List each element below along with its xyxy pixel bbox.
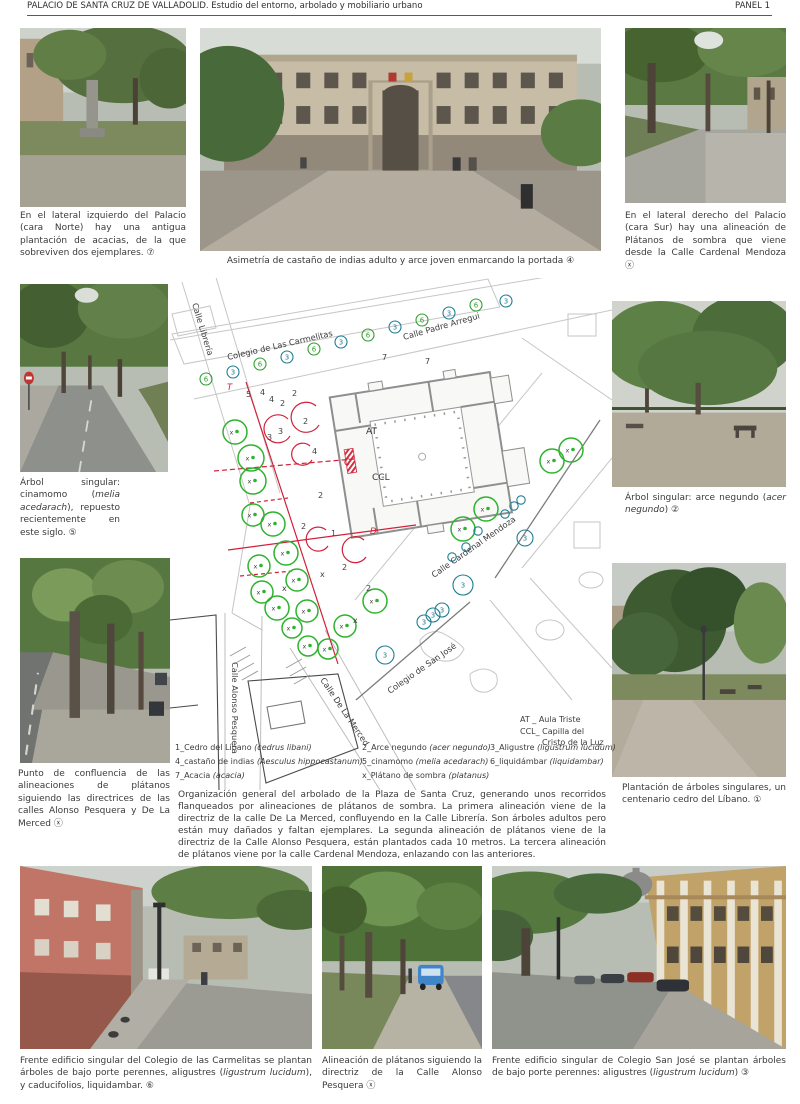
photo-san-jose-street (492, 866, 786, 1049)
platano-tree-marker (298, 636, 318, 656)
caption-pesquera: Alineación de plátanos siguiendo la dire… (322, 1055, 482, 1092)
svg-text:3: 3 (339, 339, 343, 347)
caption-carmelitas: Frente edificio singular del Colegio de … (20, 1055, 312, 1092)
photo-arce-negundo (612, 301, 786, 487)
panel-page: PALACIO DE SANTA CRUZ DE VALLADOLID. Est… (0, 0, 800, 1104)
svg-text:x: x (340, 623, 344, 631)
platano-tree-marker (274, 541, 298, 565)
header-rule (27, 15, 772, 16)
svg-text:x: x (230, 429, 234, 437)
svg-text:x: x (547, 458, 551, 466)
legend-item: x_Plátano de sombra (platanus) (362, 769, 490, 783)
street-label: Calle Padre Arregui (402, 310, 481, 341)
svg-text:x: x (458, 526, 462, 534)
platano-tree-marker (286, 569, 308, 591)
caption-portada: Asimetría de castaño de indias adulto y … (200, 256, 601, 266)
legend-item: 4_castaño de indias (Aesculus hippocasta… (175, 755, 359, 769)
photo-south-side-platanos (625, 28, 786, 203)
tree-number-label: 2 (280, 399, 285, 408)
svg-text:3: 3 (504, 298, 508, 306)
photo-palace-art (200, 28, 601, 251)
panel-number: PANEL 1 (735, 1, 770, 11)
svg-text:3: 3 (447, 310, 451, 318)
tree-number-label: 2 (301, 522, 306, 531)
map-key-line: AT _ Aula Triste (520, 714, 604, 726)
caption-platanos-sur: En el lateral derecho del Palacio (cara … (625, 210, 786, 272)
platano-tree-marker (240, 468, 266, 494)
svg-text:x: x (287, 625, 291, 633)
tree-number-label: 3 (267, 433, 272, 442)
svg-text:x: x (257, 589, 261, 597)
aligustre-small-marker (517, 496, 525, 504)
svg-text:x: x (370, 598, 374, 606)
svg-text:3: 3 (461, 582, 465, 590)
svg-text:x: x (248, 478, 252, 486)
tree-number-label: 2 (318, 491, 323, 500)
legend-item: 5_cinamomo (melia acedarach) (362, 755, 490, 769)
photo-north-side-acacias (20, 28, 186, 207)
tree-number-label: 2 (342, 563, 347, 572)
legend-item: 6_liquidámbar (liquidambar) (490, 755, 612, 769)
svg-text:x: x (272, 605, 276, 613)
tree-number-label: 5 (246, 390, 251, 399)
svg-text:3: 3 (422, 619, 426, 627)
tree-number-label: x (353, 616, 358, 625)
platano-tree-marker (318, 639, 338, 659)
caption-cedro: Plantación de árboles singulares, un cen… (622, 782, 786, 807)
platano-tree-marker (248, 555, 270, 577)
section-label: C (344, 458, 350, 468)
svg-text:x: x (566, 447, 570, 455)
photo-cedro-art (612, 563, 786, 777)
tree-number-label: x (282, 584, 287, 593)
platano-tree-marker (296, 600, 318, 622)
tree-number-label: x (320, 570, 325, 579)
svg-text:6: 6 (204, 376, 209, 384)
photo-palace-facade (200, 28, 601, 251)
platano-tree-marker (265, 596, 289, 620)
svg-text:x: x (292, 577, 296, 585)
caption-cinamomo: Árbol singular: cinamomo (melia acedarac… (20, 477, 120, 539)
svg-text:3: 3 (285, 354, 289, 362)
photo-carmelitas-art (20, 866, 312, 1049)
photo-confluencia-art (20, 558, 170, 763)
svg-text:6: 6 (420, 317, 425, 325)
svg-text:3: 3 (523, 535, 527, 543)
tree-number-label: 4 (260, 388, 265, 397)
caption-confluencia: Punto de confluencia de las alineaciones… (18, 768, 170, 830)
tree-number-label: 2 (303, 417, 308, 426)
map-legend-col2: 2_Arce negundo (acer negundo) 5_cinamomo… (362, 741, 490, 783)
photo-san-jose-art (492, 866, 786, 1049)
map-legend-col1: 1_Cedro del Líbano (cedrus libani) 4_cas… (175, 741, 359, 783)
legend-item: 2_Arce negundo (acer negundo) (362, 741, 490, 755)
section-label: D (370, 527, 377, 537)
platano-tree-marker (261, 512, 285, 536)
svg-text:x: x (302, 608, 306, 616)
svg-text:x: x (248, 512, 252, 520)
caption-acacias: En el lateral izquierdo del Palacio (car… (20, 210, 186, 260)
tree-number-label: 4 (269, 395, 274, 404)
svg-text:6: 6 (258, 361, 263, 369)
tree-number-label: 1 (331, 529, 336, 538)
svg-text:3: 3 (431, 612, 435, 620)
photo-south-side-art (625, 28, 786, 203)
tree-number-label: 4 (312, 447, 317, 456)
tree-number-label: 3 (278, 427, 283, 436)
legend-item: 1_Cedro del Líbano (cedrus libani) (175, 741, 359, 755)
svg-text:3: 3 (383, 652, 387, 660)
svg-text:6: 6 (366, 332, 371, 340)
svg-text:x: x (254, 563, 258, 571)
photo-confluencia (20, 558, 170, 763)
legend-item: 3_Aligustre (ligustrum lucidum) (490, 741, 612, 755)
photo-cinamomo-art (20, 284, 168, 472)
photo-north-side-art (20, 28, 186, 207)
street-label: Colegio de Las Carmelitas (226, 328, 333, 362)
svg-text:3: 3 (440, 607, 444, 615)
platano-tree-marker (540, 449, 564, 473)
platano-tree-marker (238, 445, 264, 471)
caption-sanjose: Frente edificio singular de Colegio San … (492, 1055, 786, 1080)
svg-text:x: x (481, 506, 485, 514)
caption-arce: Árbol singular: arce negundo (acer negun… (625, 492, 786, 517)
map-legend-col3: 3_Aligustre (ligustrum lucidum) 6_liquid… (490, 741, 612, 769)
main-paragraph: Organización general del arbolado de la … (178, 789, 606, 861)
photo-carmelitas-street (20, 866, 312, 1049)
photo-cedro (612, 563, 786, 777)
tree-number-label: 7 (425, 357, 430, 366)
svg-text:x: x (281, 550, 285, 558)
tree-number-label: 2 (366, 584, 371, 593)
svg-text:x: x (246, 455, 250, 463)
map-key-line: CCL_ Capilla del (520, 726, 604, 738)
map-crosswalks (230, 647, 310, 684)
svg-text:3: 3 (393, 324, 397, 332)
platano-tree-marker (223, 420, 247, 444)
legend-item: 7_Acacia (acacia) (175, 769, 359, 783)
svg-text:x: x (268, 521, 272, 529)
plan-label: CCL (372, 473, 390, 483)
svg-text:6: 6 (312, 346, 317, 354)
plan-label: AT (366, 427, 377, 437)
svg-text:x: x (303, 643, 307, 651)
svg-text:3: 3 (231, 369, 235, 377)
page-title: PALACIO DE SANTA CRUZ DE VALLADOLID. Est… (27, 1, 423, 11)
svg-text:x: x (323, 646, 327, 654)
street-label: Calle De La Merced (318, 676, 371, 748)
section-label: T (227, 383, 233, 393)
photo-pesquera-alineacion (322, 866, 482, 1049)
platano-tree-marker (251, 581, 273, 603)
photo-pesquera-art (322, 866, 482, 1049)
tree-number-label: 7 (382, 353, 387, 362)
photo-cinamomo (20, 284, 168, 472)
photo-arce-art (612, 301, 786, 487)
platano-tree-marker (282, 618, 302, 638)
tree-number-label: 2 (292, 389, 297, 398)
svg-text:6: 6 (474, 302, 479, 310)
